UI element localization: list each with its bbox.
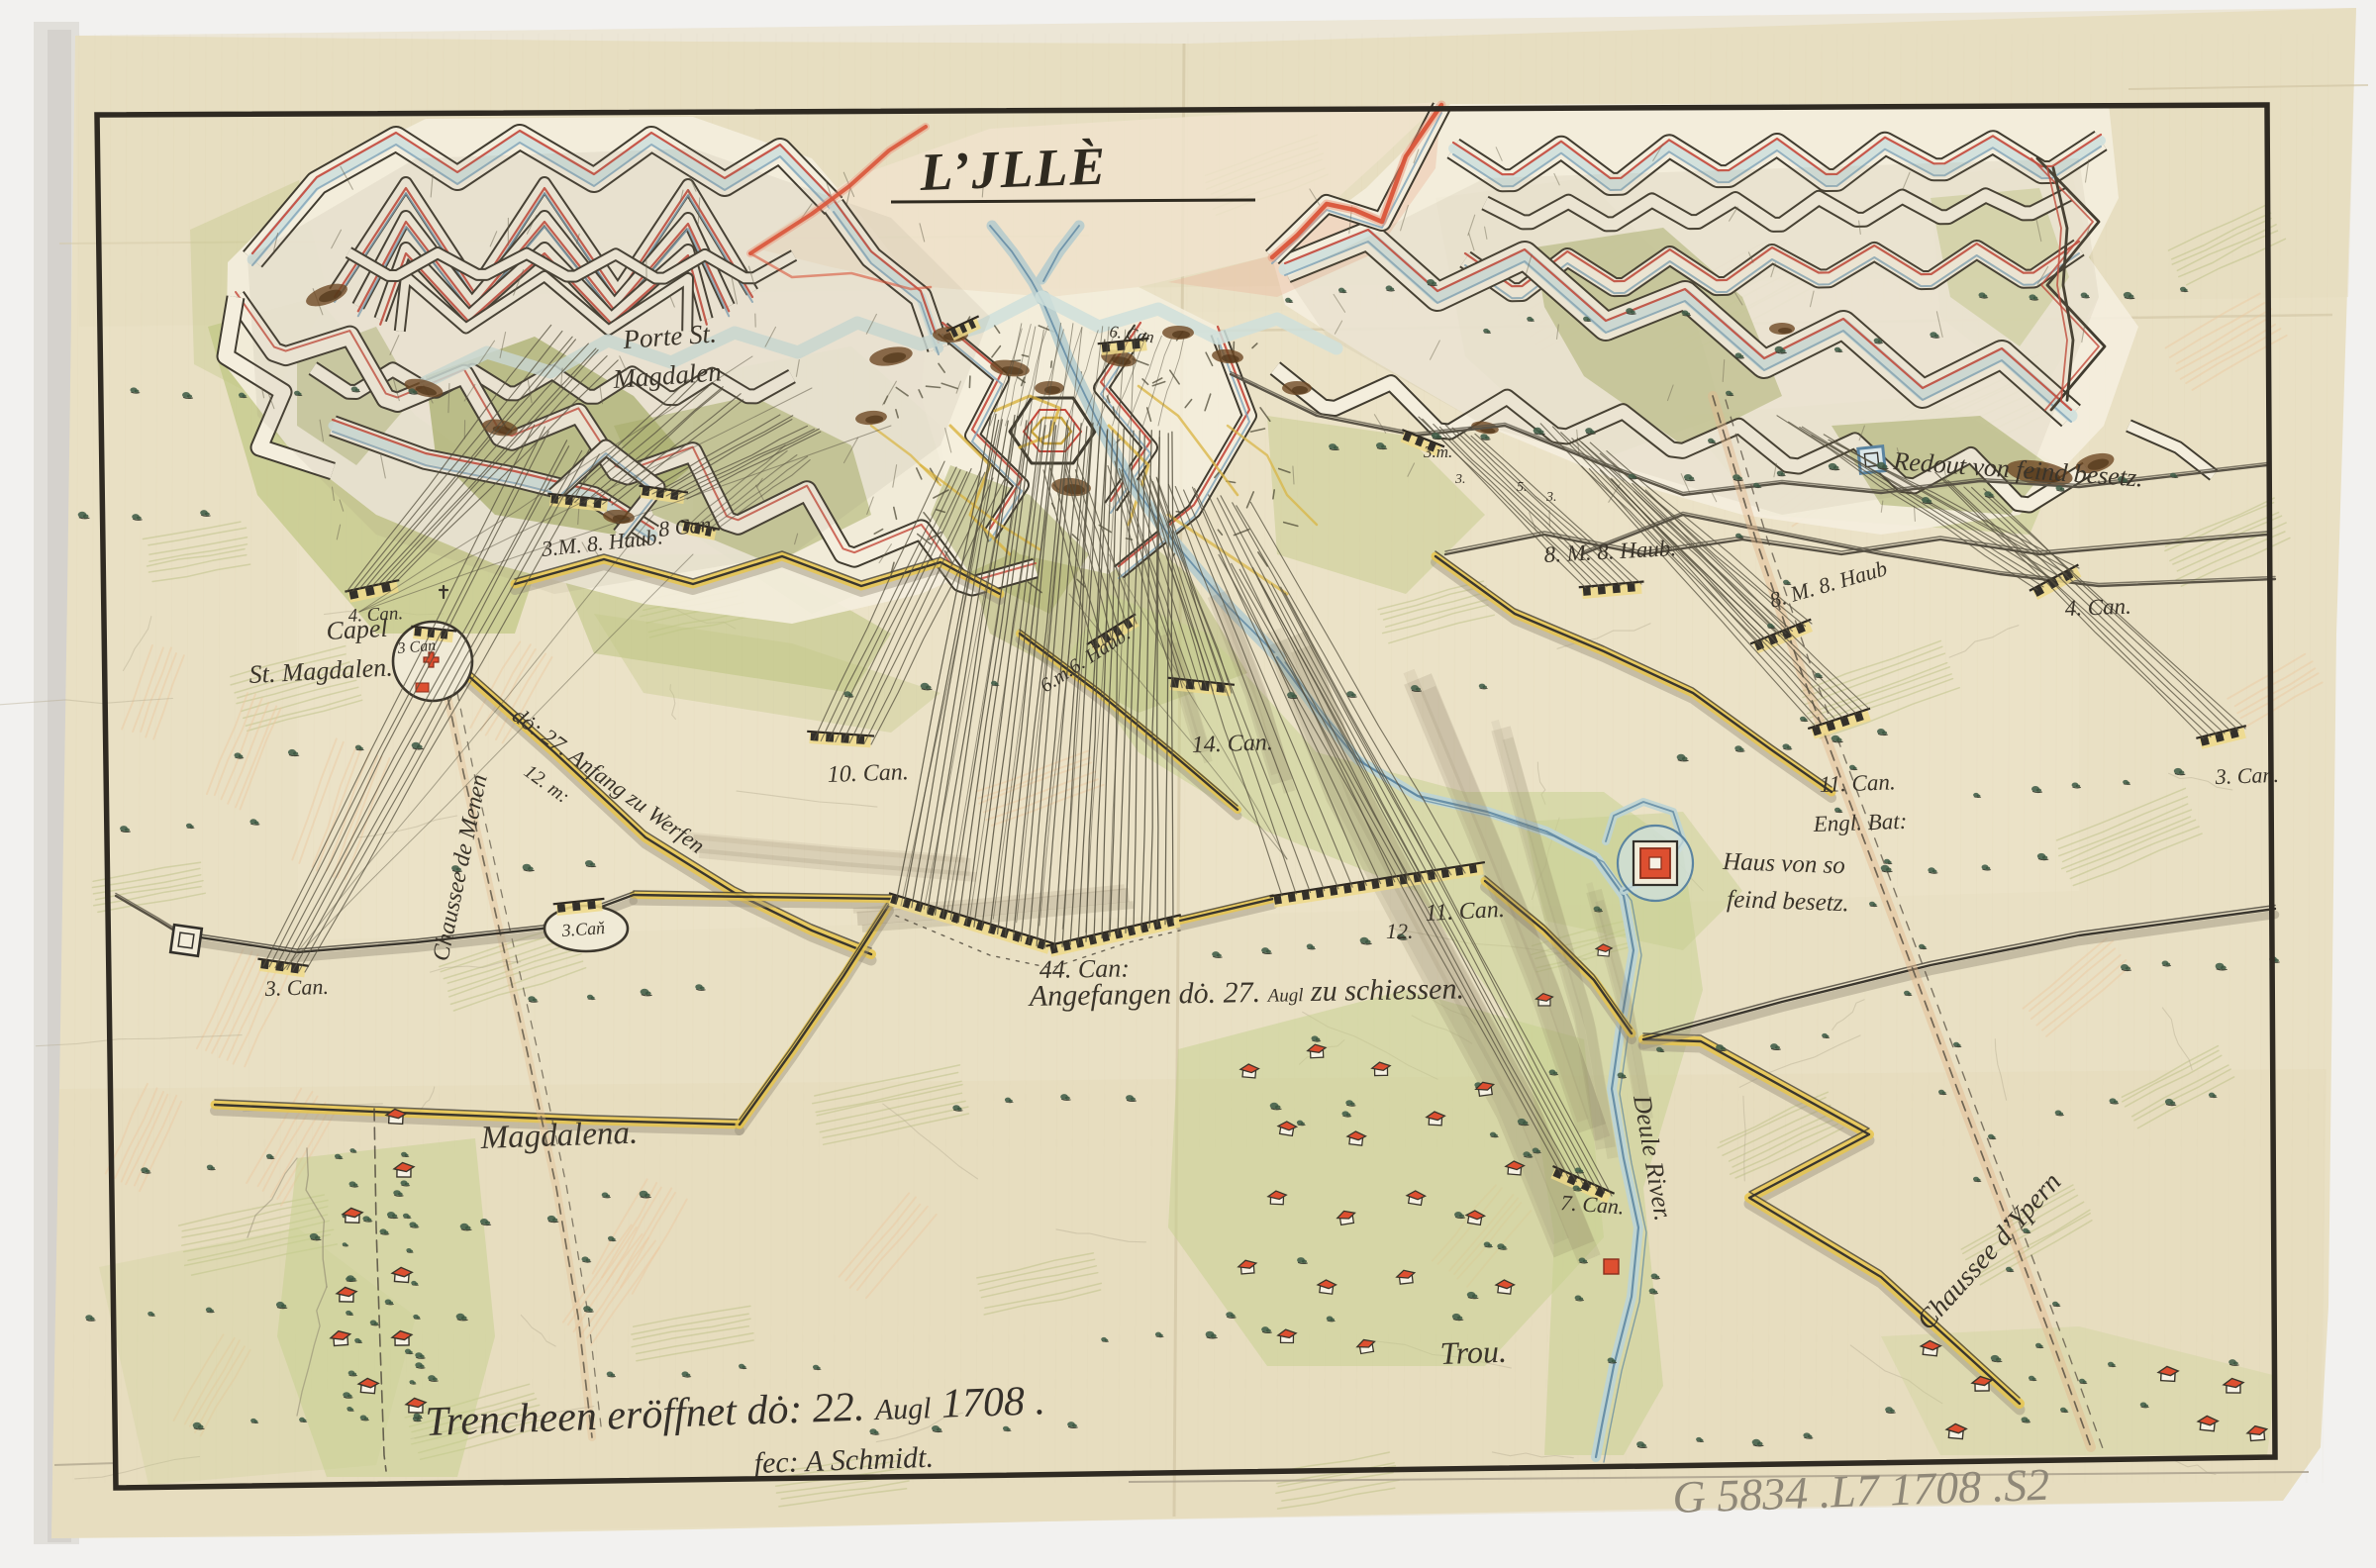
svg-text:Trou.: Trou.	[1439, 1333, 1508, 1371]
svg-text:L’JLLÈ: L’JLLÈ	[918, 136, 1108, 202]
svg-text:Engl. Bat:: Engl. Bat:	[1812, 809, 1907, 836]
svg-text:3.m.: 3.m.	[1423, 442, 1452, 461]
svg-text:3.Caň: 3.Caň	[560, 918, 606, 940]
svg-text:5.: 5.	[1517, 480, 1528, 495]
svg-text:14. Can.: 14. Can.	[1191, 730, 1273, 758]
svg-text:feind besetz.: feind besetz.	[1727, 886, 1849, 917]
svg-text:Haus von so: Haus von so	[1722, 848, 1845, 879]
svg-text:4. Can.: 4. Can.	[347, 603, 403, 627]
svg-text:3 Can: 3 Can	[396, 637, 437, 657]
svg-text:Magdalena.: Magdalena.	[479, 1115, 639, 1156]
svg-text:10. Can.: 10. Can.	[827, 759, 909, 788]
svg-text:11. Can.: 11. Can.	[1425, 897, 1505, 927]
svg-text:3.: 3.	[1454, 472, 1466, 487]
svg-text:12.: 12.	[1386, 919, 1414, 943]
svg-text:11. Can.: 11. Can.	[1819, 769, 1896, 797]
svg-text:7. Can.: 7. Can.	[1560, 1190, 1626, 1219]
svg-text:3. Can.: 3. Can.	[263, 974, 329, 1001]
svg-text:4. Can.: 4. Can.	[2064, 594, 2131, 621]
svg-text:3.: 3.	[1545, 490, 1557, 505]
